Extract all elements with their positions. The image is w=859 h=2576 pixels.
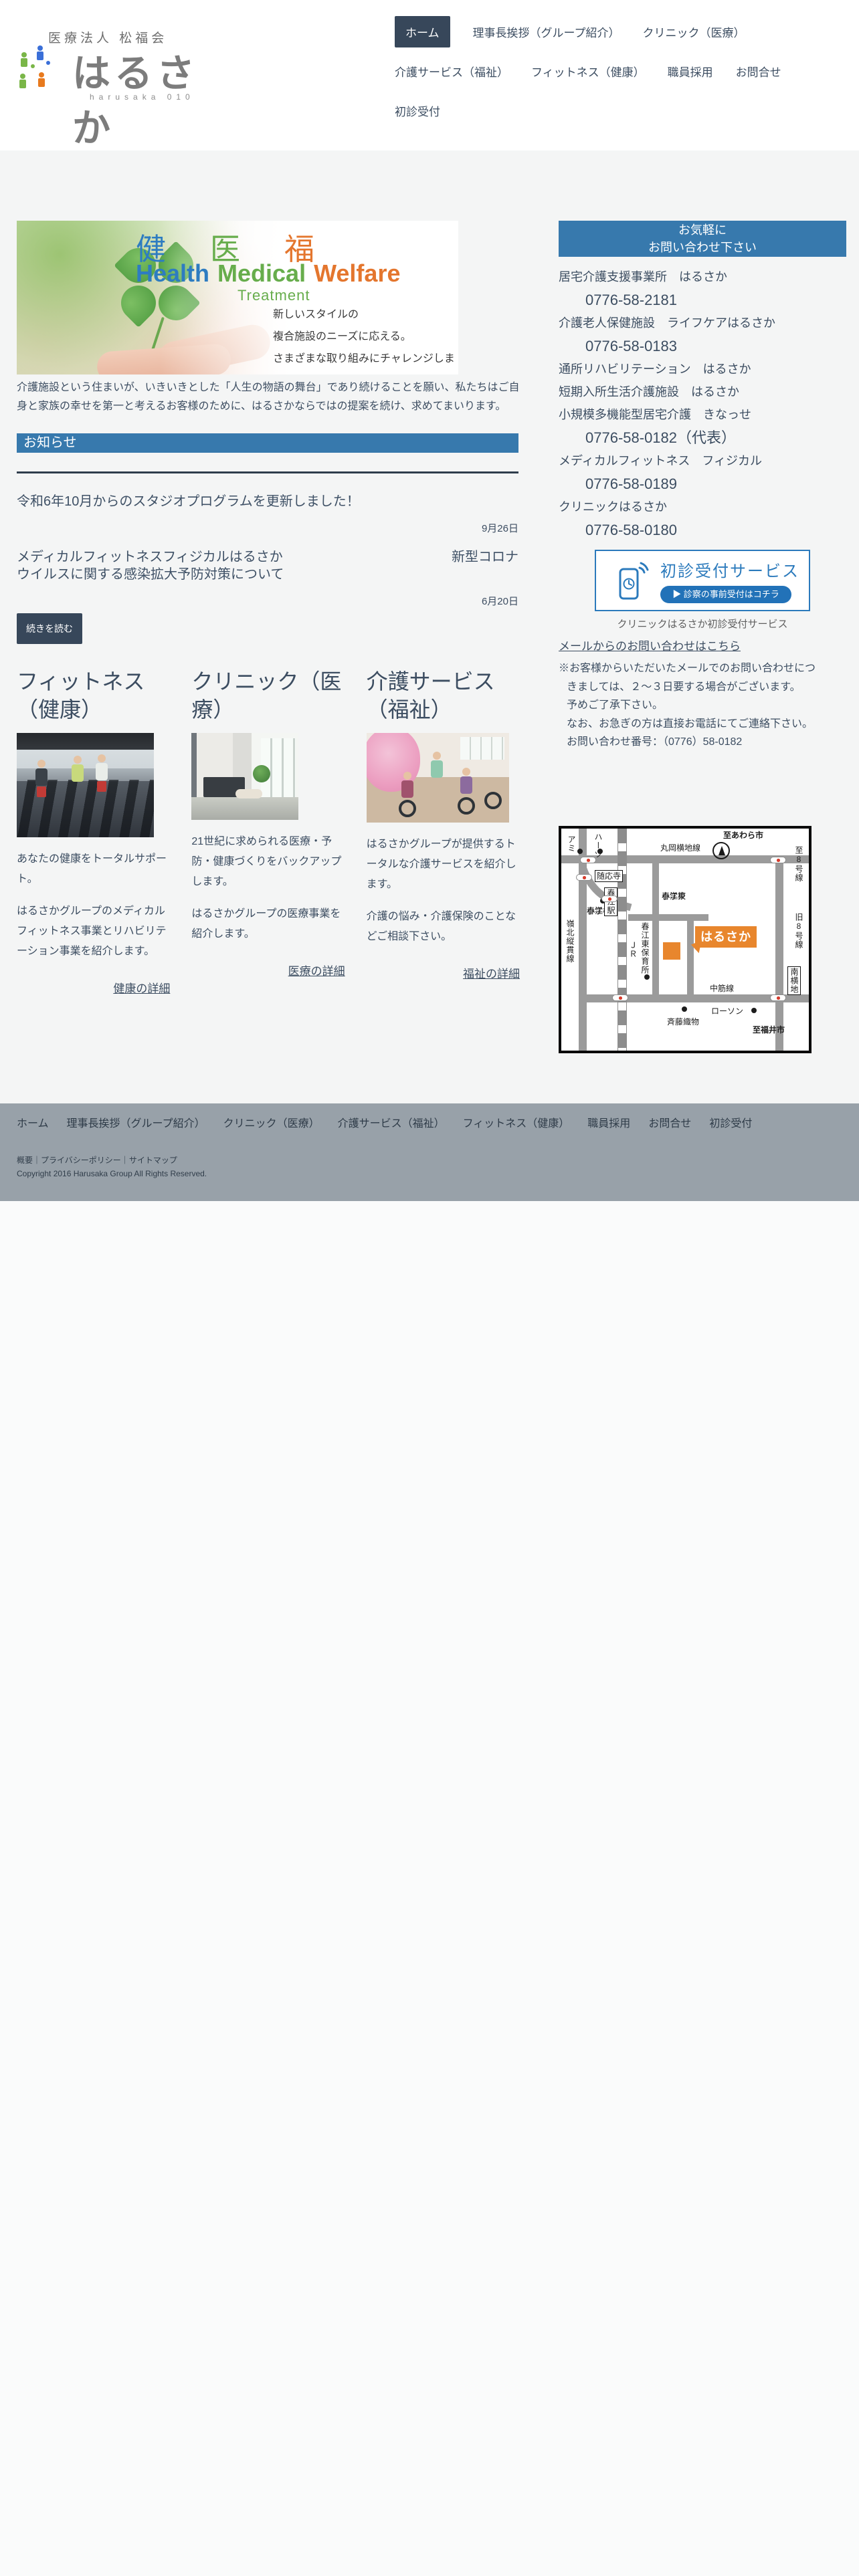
news-list: 令和6年10月からのスタジオプログラムを更新しました！ 9月26日 メディカルフ… [17, 493, 518, 621]
main-nav: ホーム 理事長挨拶（グループ紹介） クリニック（医療） 介護サービス（福祉） フ… [395, 16, 801, 126]
smartphone-icon [617, 560, 650, 601]
nav-item-greeting[interactable]: 理事長挨拶（グループ紹介） [473, 16, 620, 47]
footer-link-clinic[interactable]: クリニック（医療） [223, 1114, 320, 1130]
map-label: 嶺北縦貫線 [565, 920, 575, 963]
hero-treatment: Treatment [237, 287, 310, 304]
footer: ホーム 理事長挨拶（グループ紹介） クリニック（医療） 介護サービス（福祉） フ… [0, 1103, 859, 1201]
clinic-detail-link[interactable]: 医療の詳細 [191, 962, 345, 978]
harusaka-callout: はるさか [695, 926, 757, 948]
map-poi-dot [751, 1008, 757, 1013]
news-item-date: 6月20日 [17, 594, 518, 608]
facility-name: 介護老人保健施設 ライフケアはるさか [559, 315, 846, 331]
hand-photo [155, 322, 273, 374]
card-text: 21世紀に求められる医療・予防・健康づくりをバックアップします。 [191, 832, 345, 892]
card-title: クリニック（医療） [191, 667, 345, 724]
care-detail-link[interactable]: 福祉の詳細 [367, 964, 520, 981]
facility-phone: 0776-58-0189 [585, 475, 846, 493]
traffic-signal-icon [770, 857, 786, 863]
map-poi-dot [682, 1006, 687, 1012]
hero-banner: 健医福 HealthMedicalWelfare Treatment 新しいスタ… [17, 221, 458, 374]
separator: ｜ [33, 1156, 41, 1165]
copyright: Copyright 2016 Harusaka Group All Rights… [17, 1169, 207, 1178]
footer-link-fitness[interactable]: フィットネス（健康） [463, 1114, 570, 1130]
map-poi-dot [597, 849, 603, 854]
facility-phone: 0776-58-2181 [585, 292, 846, 309]
map-label: 丸岡横地線 [660, 843, 700, 853]
footer-link-overview[interactable]: 概要 [17, 1156, 33, 1165]
traffic-signal-icon [612, 994, 628, 1001]
contact-phone-list: 居宅介護支援事業所 はるさか 0776-58-2181 介護老人保健施設 ライフ… [559, 269, 846, 545]
map-label: 至あわら市 [723, 831, 763, 840]
logo-mark-icon [15, 44, 56, 98]
card-title: フィットネス（健康） [17, 667, 170, 724]
map-label: 旧8号線 [794, 913, 803, 949]
news-item-date: 9月26日 [17, 521, 518, 535]
footer-link-home[interactable]: ホーム [17, 1114, 49, 1130]
map-label: ハーツ [593, 833, 603, 859]
map-poi-dot [577, 849, 583, 854]
map-label: 至8号線 [794, 846, 803, 882]
map-label: ローソン [711, 1006, 743, 1016]
map-poi-dot [644, 974, 650, 980]
news-item-title[interactable]: メディカルフィットネスフィジカルはるさか 新型コロナ [17, 548, 518, 566]
brand-subtitle: harusaka 010 [90, 92, 195, 102]
footer-sub-links: 概要｜プライバシーポリシー｜サイトマップ [17, 1154, 177, 1166]
card-text: 介護の悩み・介護保険のことなどご相談下さい。 [367, 907, 520, 947]
map-label: 南横地 [787, 966, 801, 995]
first-visit-reception-banner[interactable]: 初診受付サービス ▶ 診察の事前受付はコチラ [595, 550, 810, 611]
facility-name: 通所リハビリテーション はるさか [559, 361, 846, 377]
map-label: 至福井市 [753, 1025, 785, 1035]
footer-link-first-visit[interactable]: 初診受付 [709, 1114, 752, 1130]
nav-item-care[interactable]: 介護サービス（福祉） [395, 56, 508, 87]
mail-inquiry-link[interactable]: メールからのお問い合わせはこちら [559, 637, 741, 653]
card-fitness: フィットネス（健康） あなたの健康をトータルサポート。 はるさかグループのメディ… [17, 667, 170, 996]
map-railway [617, 829, 627, 1051]
access-map: 丸岡横地線 至あわら市 至8号線 旧8号線 南横地 アミ ハーツ 随応寺 嶺北縦… [559, 826, 812, 1053]
care-photo [367, 733, 509, 823]
facility-name: クリニックはるさか [559, 499, 846, 515]
map-label: 随応寺 [595, 870, 623, 882]
harusaka-location [663, 942, 680, 960]
page: 医療法人 松福会 はるさか harusaka 010 ホーム 理事長挨拶（グルー… [0, 0, 859, 2576]
reception-button[interactable]: ▶ 診察の事前受付はコチラ [660, 586, 791, 603]
facility-name: メディカルフィットネス フィジカル [559, 453, 846, 469]
facility-name: 居宅介護支援事業所 はるさか [559, 269, 846, 285]
reception-caption: クリニックはるさか初診受付サービス [559, 617, 846, 631]
card-title: 介護サービス（福祉） [367, 667, 520, 724]
facility-phone: 0776-58-0183 [585, 338, 846, 355]
site-logo[interactable]: 医療法人 松福会 はるさか harusaka 010 [15, 9, 235, 96]
news-item: 令和6年10月からのスタジオプログラムを更新しました！ 9月26日 [17, 493, 518, 535]
fitness-photo [17, 733, 154, 837]
footer-nav: ホーム 理事長挨拶（グループ紹介） クリニック（医療） 介護サービス（福祉） フ… [17, 1114, 752, 1130]
news-divider [17, 471, 518, 473]
map-label: ＪＲ [628, 941, 638, 958]
facility-name: 短期入所生活介護施設 はるさか [559, 384, 846, 400]
nav-item-recruit[interactable]: 職員採用 [668, 56, 713, 87]
footer-link-greeting[interactable]: 理事長挨拶（グループ紹介） [67, 1114, 205, 1130]
facility-phone: 0776-58-0180 [585, 522, 846, 539]
nav-item-home[interactable]: ホーム [395, 16, 450, 47]
news-heading: お知らせ [17, 433, 518, 453]
card-text: はるさかグループのメディカルフィットネス事業とリハビリテーション事業を紹介します… [17, 901, 170, 962]
intro-paragraph: 介護施設という住まいが、いきいきとした「人生の物語の舞台」であり続けることを願い… [17, 379, 520, 416]
fitness-detail-link[interactable]: 健康の詳細 [17, 979, 170, 996]
footer-link-contact[interactable]: お問合せ [648, 1114, 691, 1130]
service-cards: フィットネス（健康） あなたの健康をトータルサポート。 はるさかグループのメディ… [17, 667, 520, 996]
traffic-signal-icon [601, 895, 617, 902]
hand-photo [96, 343, 232, 374]
hero-english-row: HealthMedicalWelfare [136, 259, 408, 288]
traffic-signal-icon [580, 857, 596, 863]
card-text: あなたの健康をトータルサポート。 [17, 849, 170, 889]
footer-link-privacy[interactable]: プライバシーポリシー [41, 1156, 121, 1165]
inquiry-note: ※お客様からいただいたメールでのお問い合わせにつ きましては、２～３日要する場合… [559, 659, 826, 752]
reception-title: 初診受付サービス [660, 558, 799, 581]
map-label: 中筋線 [710, 984, 734, 993]
card-text: はるさかグループの医療事業を紹介します。 [191, 904, 345, 944]
traffic-signal-icon [576, 874, 592, 881]
nav-item-fitness[interactable]: フィットネス（健康） [531, 56, 645, 87]
footer-link-care[interactable]: 介護サービス（福祉） [338, 1114, 445, 1130]
news-item: メディカルフィットネスフィジカルはるさか 新型コロナ ウイルスに関する感染拡大予… [17, 548, 518, 608]
news-item-title[interactable]: 令和6年10月からのスタジオプログラムを更新しました！ [17, 493, 518, 510]
facility-phone: 0776-58-0182（代表） [585, 429, 846, 447]
card-clinic: クリニック（医療） 21世紀に求められる医療・予防・健康づくりをバックアップしま… [191, 667, 345, 996]
separator: ｜ [121, 1156, 129, 1165]
header: 医療法人 松福会 はるさか harusaka 010 ホーム 理事長挨拶（グルー… [0, 0, 859, 150]
map-label: 春江東保育所 [640, 922, 650, 974]
card-text: はるさかグループが提供するトータルな介護サービスを紹介します。 [367, 835, 520, 895]
footer-link-recruit[interactable]: 職員採用 [587, 1114, 630, 1130]
map-label: アミ [567, 835, 576, 853]
read-more-button[interactable]: 続きを読む [17, 613, 82, 644]
nav-item-clinic[interactable]: クリニック（医療） [642, 16, 745, 47]
facility-name: 小規模多機能型居宅介護 きなっせ [559, 407, 846, 423]
nav-item-contact[interactable]: お問合せ [736, 56, 781, 87]
traffic-signal-icon [770, 994, 786, 1001]
contact-header: お気軽に お問い合わせ下さい [559, 221, 846, 257]
compass-icon [712, 842, 730, 859]
hero-tagline: 新しいスタイルの 複合施設のニーズに応える。 さまざまな取り組みにチャレンジしま… [273, 304, 458, 374]
footer-link-sitemap[interactable]: サイトマップ [129, 1156, 177, 1165]
card-care: 介護サービス（福祉） はるさかグループが提供するトータルな介護サービスを紹介しま… [367, 667, 520, 996]
map-label: 斉藤織物 [667, 1017, 699, 1027]
news-item-title-line2[interactable]: ウイルスに関する感染拡大予防対策について [17, 566, 518, 583]
nav-item-first-visit[interactable]: 初診受付 [395, 95, 440, 126]
clinic-photo [191, 733, 298, 820]
